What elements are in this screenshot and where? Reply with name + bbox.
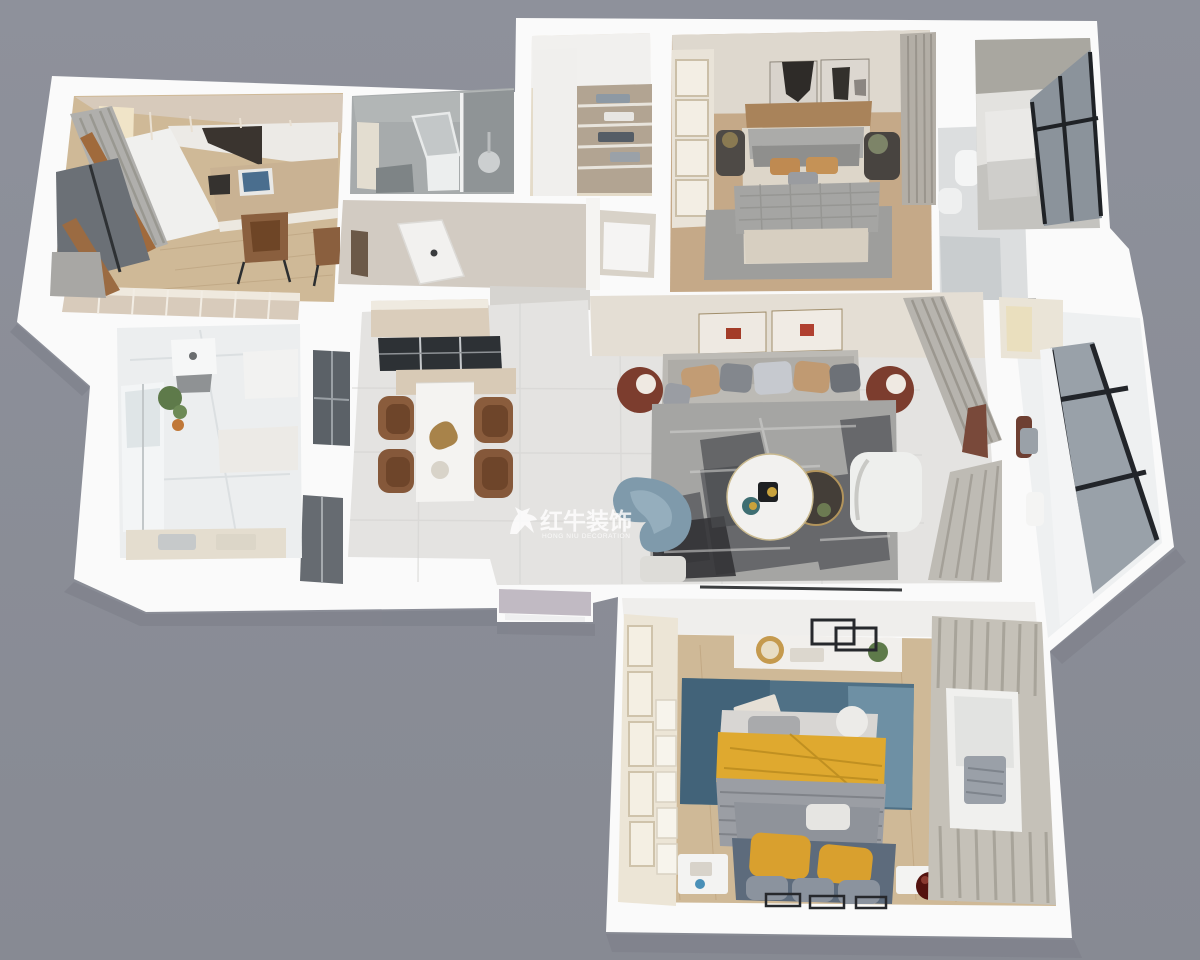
svg-text:红牛装饰: 红牛装饰 <box>540 508 632 534</box>
svg-text:HONG NIU DECORATION: HONG NIU DECORATION <box>542 533 631 540</box>
